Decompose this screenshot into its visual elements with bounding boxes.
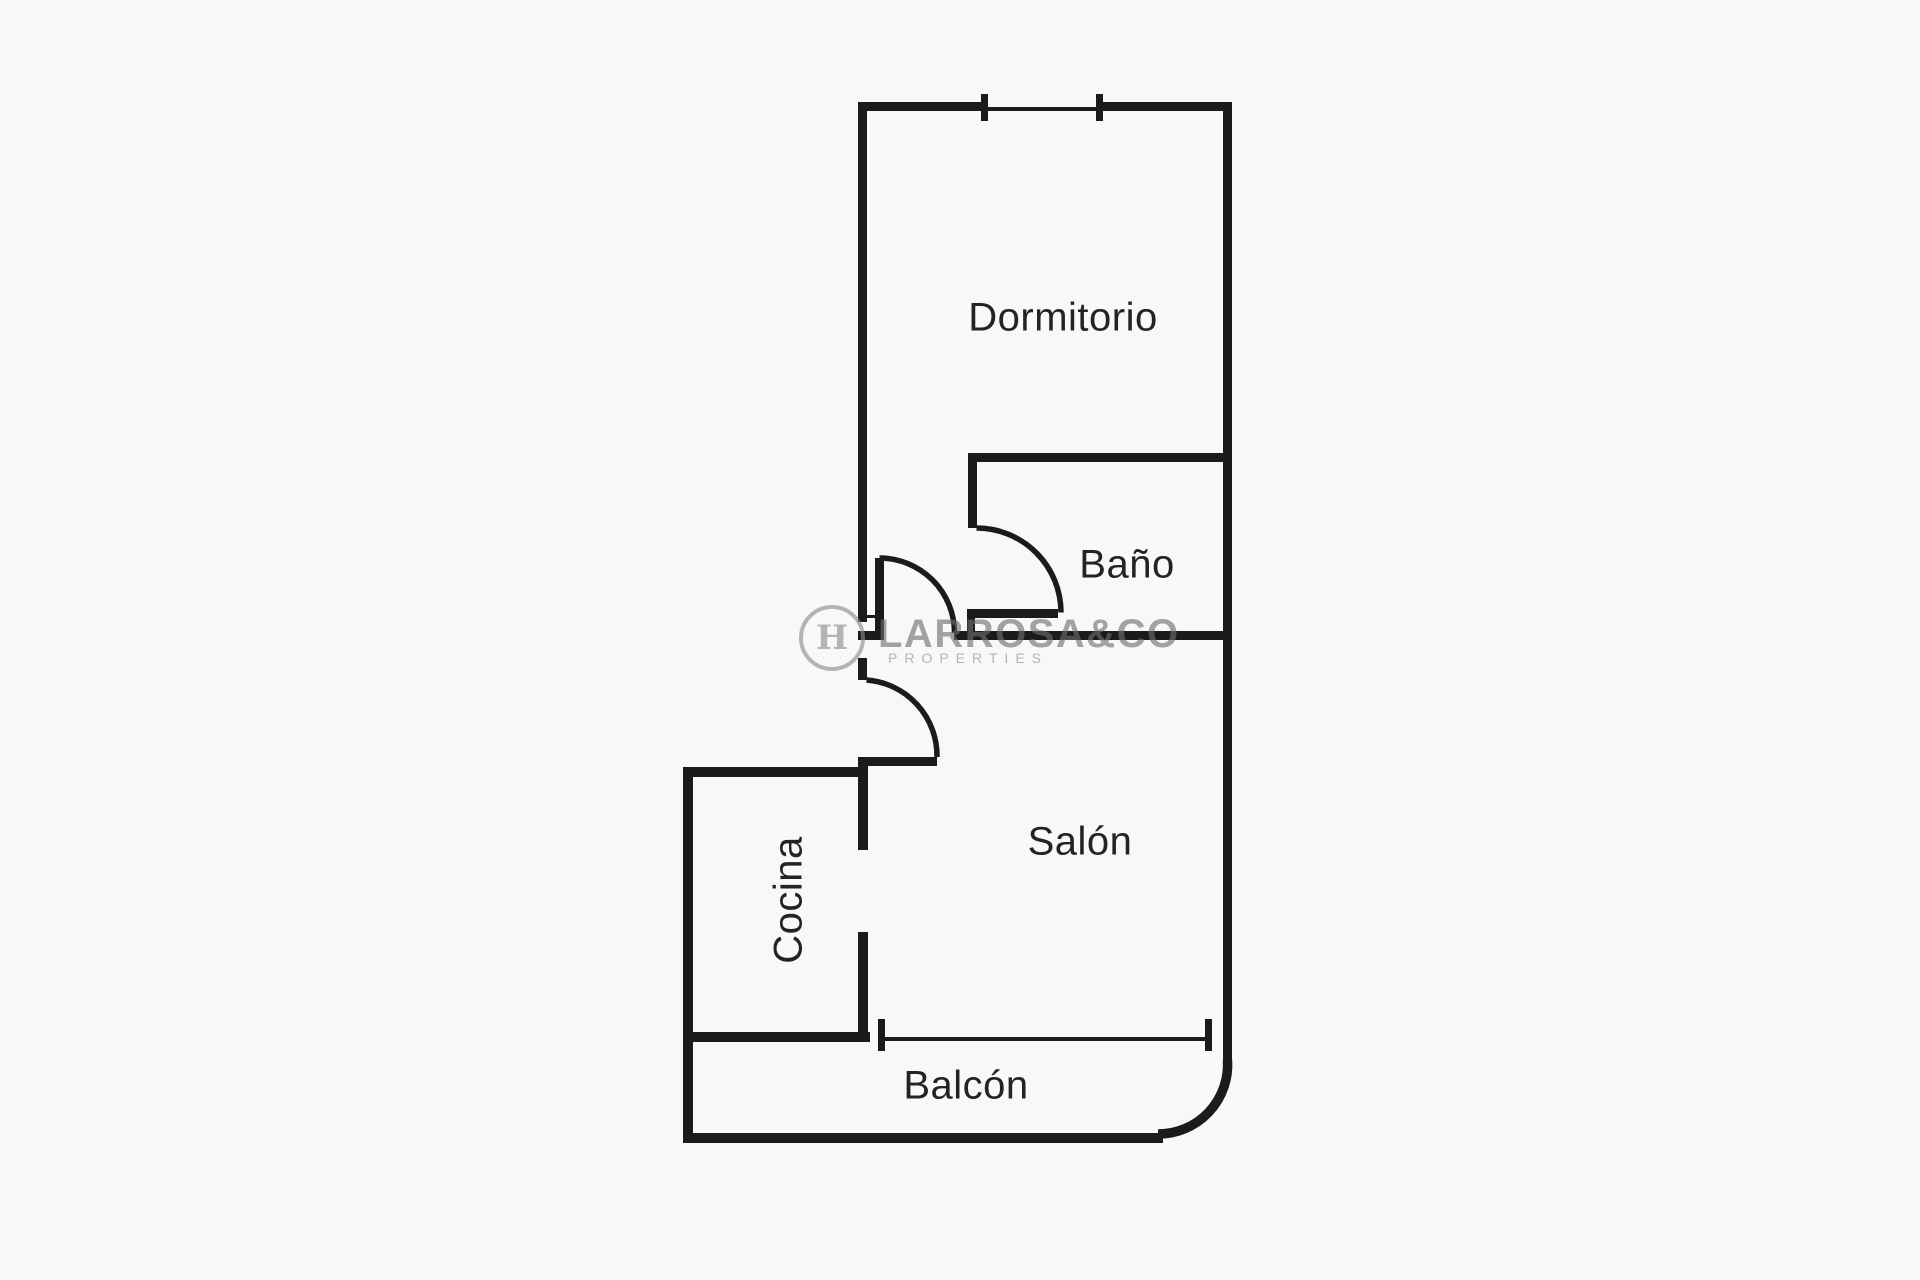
room-label-balcon: Balcón	[903, 1064, 1028, 1109]
wall-bano-top	[968, 453, 1232, 462]
room-label-cocina: Cocina	[767, 836, 812, 964]
wall-top-right	[1100, 102, 1232, 111]
bano-door-leaf	[972, 609, 1058, 618]
floorplan-canvas: Dormitorio Baño Salón Cocina Balcón H LA…	[0, 0, 1920, 1280]
wall-bano-left	[968, 453, 977, 528]
wall-left-upper	[858, 102, 867, 622]
bano-door-arc	[977, 528, 1062, 613]
room-label-dormitorio: Dormitorio	[968, 296, 1157, 341]
wall-balcony-corner-curve	[1158, 1060, 1228, 1134]
dormitorio-door-arc	[880, 558, 955, 633]
wall-cocina-top	[683, 767, 868, 777]
wall-cocina-salon-lower	[858, 932, 868, 1042]
window-sill-top	[984, 107, 1100, 111]
wall-hall-left-stub	[858, 631, 884, 640]
wall-cocina-salon-upper	[858, 758, 868, 850]
dormitorio-door-leaf	[875, 558, 884, 631]
balcony-window-line	[885, 1037, 1205, 1041]
wall-salon-top	[954, 631, 1232, 640]
salon-door-arc	[867, 680, 938, 757]
wall-balcony-bottom	[683, 1133, 1163, 1143]
wall-cocina-bottom	[683, 1032, 870, 1042]
salon-door-leaf	[858, 757, 937, 766]
wall-right	[1223, 102, 1232, 1064]
wall-cocina-left	[683, 767, 693, 1143]
room-label-salon: Salón	[1028, 820, 1133, 865]
wall-left-mid	[858, 658, 867, 680]
balcony-window-cap-right	[1205, 1019, 1212, 1051]
balcony-window-cap-left	[878, 1019, 885, 1051]
room-label-bano: Baño	[1079, 543, 1174, 588]
wall-top-left	[858, 102, 984, 111]
